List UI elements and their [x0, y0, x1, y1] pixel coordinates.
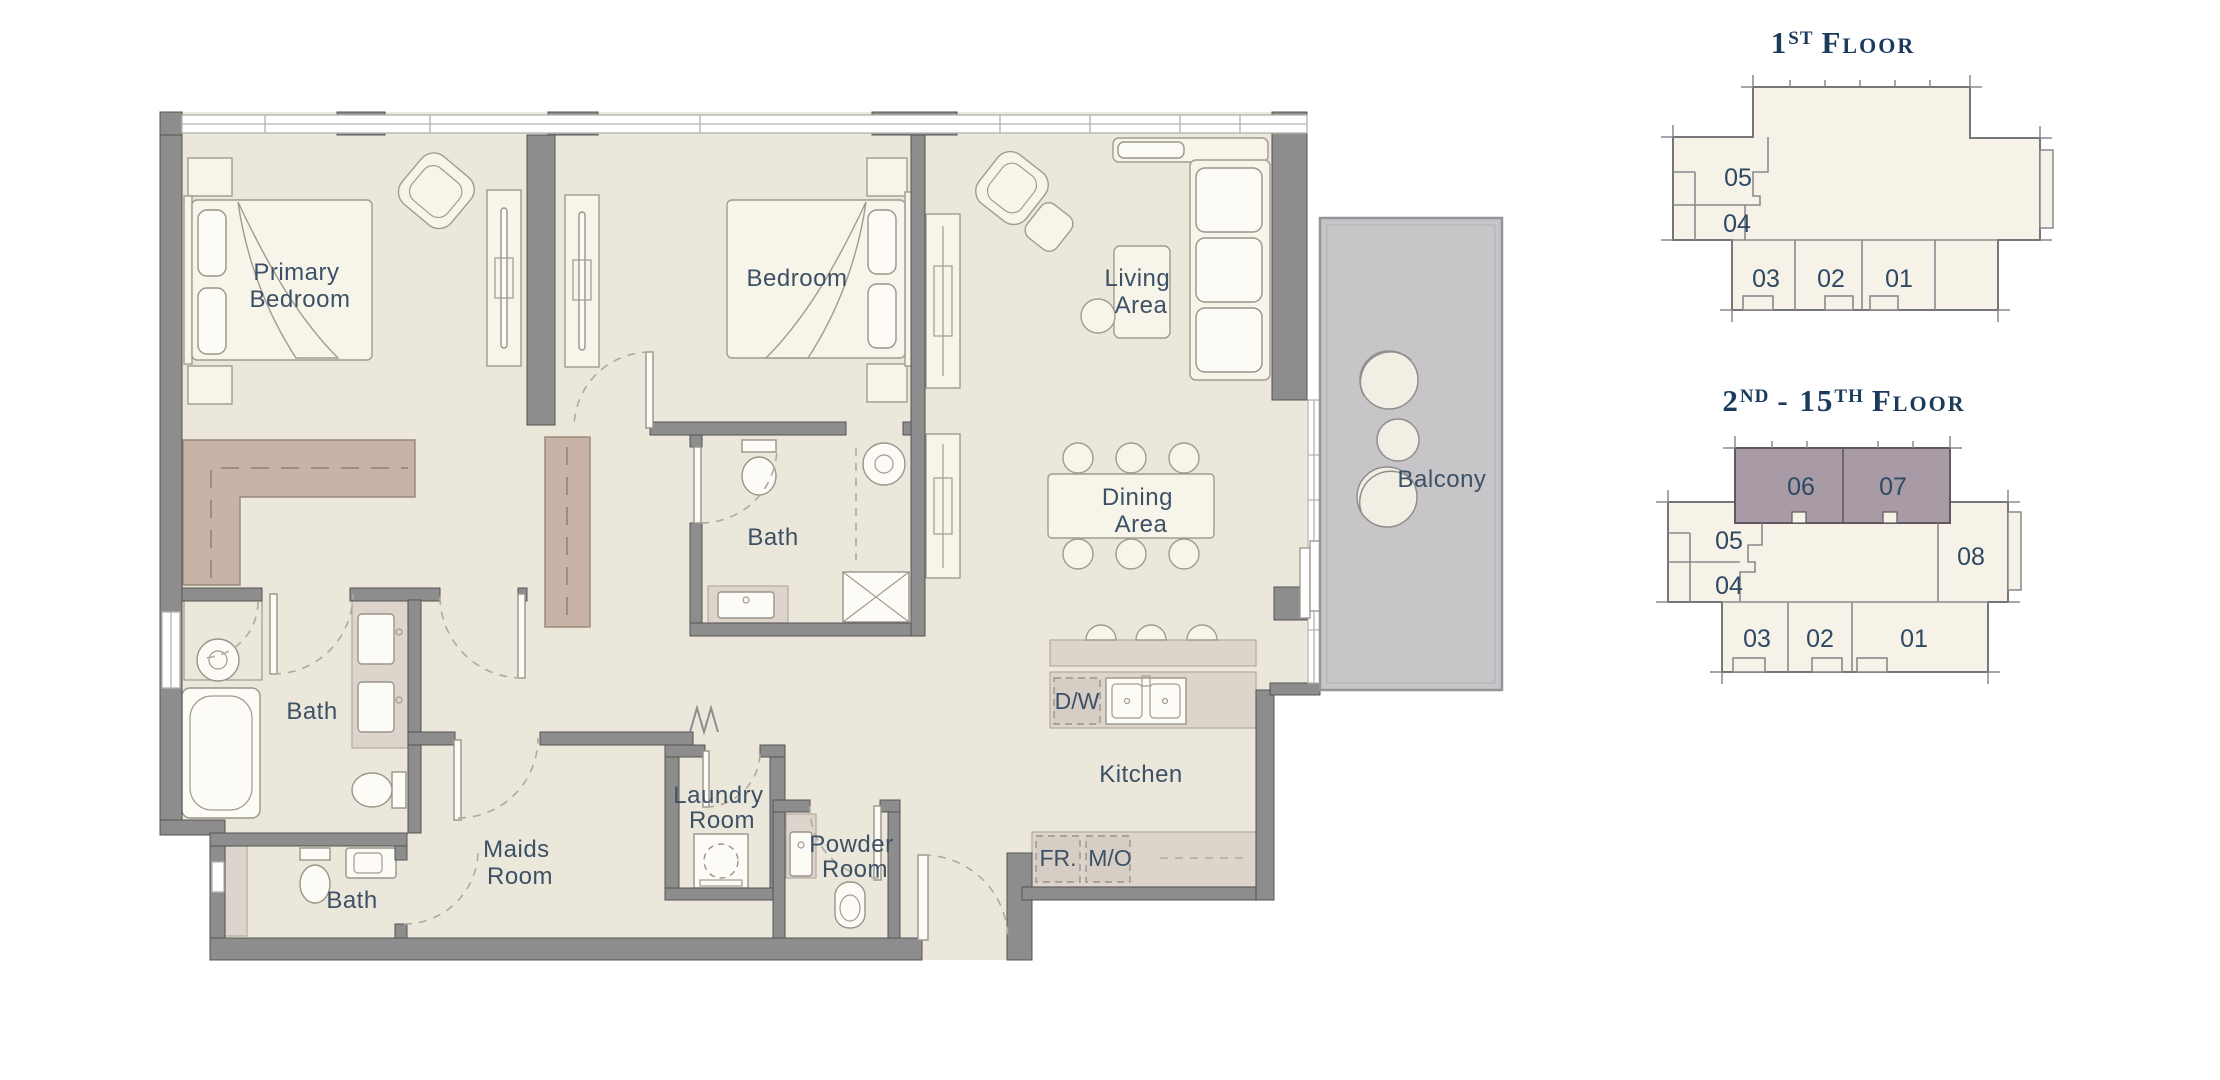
powder-room-label: Powder Room [809, 831, 901, 883]
bathtub [182, 688, 260, 818]
unit-01: 01 [1900, 625, 1928, 653]
unit-08: 08 [1957, 543, 1985, 571]
living-area-label: Living Area [1105, 265, 1178, 319]
shower-head [863, 443, 905, 485]
bedroom-label: Bedroom [747, 265, 848, 292]
washing-machine [694, 834, 748, 888]
maids-bath-shelf [225, 846, 247, 936]
unit-07: 07 [1879, 473, 1907, 501]
unit-04: 04 [1715, 572, 1743, 600]
microwave-label: M/O [1088, 845, 1131, 871]
bedroom-wardrobe-slider [565, 195, 599, 367]
keyplan-balcony [2008, 512, 2021, 590]
key-plan-first-floor: 1STFloor 05 04 03 02 01 [1661, 25, 2053, 322]
hall-cabinet [926, 434, 960, 578]
kitchen-island [1050, 640, 1256, 666]
unit-02: 02 [1806, 625, 1834, 653]
kitchen-stools [1086, 625, 1217, 640]
first-floor-title: 1STFloor [1771, 25, 1915, 60]
maids-room-label: Maids Room [483, 836, 557, 890]
kitchen-sink [1106, 676, 1186, 724]
bath-shared-label: Bath [747, 524, 798, 551]
unit-06: 06 [1787, 473, 1815, 501]
upper-floors-title: 2ND- 15THFloor [1722, 383, 1965, 418]
shower-head [197, 639, 239, 681]
balcony: Balcony [1320, 218, 1502, 690]
balcony-slider [1300, 548, 1310, 618]
keyplan-balcony [2040, 150, 2053, 228]
balcony-table [1377, 419, 1419, 461]
balcony-chair [1360, 351, 1418, 409]
toilet-tank [392, 772, 406, 808]
balcony-slider [1310, 541, 1320, 611]
unit-03: 03 [1752, 265, 1780, 293]
fridge-label: FR. [1039, 845, 1076, 871]
unit-01: 01 [1885, 265, 1913, 293]
side-table [1081, 299, 1115, 333]
unit-03: 03 [1743, 625, 1771, 653]
tv-console [926, 214, 960, 388]
primary-bedroom-label: Primary Bedroom [250, 259, 351, 313]
keyplan-outline [1673, 87, 2040, 310]
bath-primary-label: Bath [286, 698, 337, 725]
toilet-bowl [352, 773, 392, 807]
unit-05: 05 [1715, 527, 1743, 555]
unit-05: 05 [1724, 164, 1752, 192]
unit-04: 04 [1723, 210, 1751, 238]
balcony-label: Balcony [1398, 466, 1487, 493]
maids-bath-window [212, 862, 224, 892]
unit-02: 02 [1817, 265, 1845, 293]
primary-wardrobe-slider [487, 190, 521, 366]
floor-plan-sheet: Primary Bedroom Bedroom Living Area Dini… [0, 0, 2220, 1080]
key-plan-upper-floors: 2ND- 15THFloor 06 07 05 [1656, 383, 2021, 684]
dishwasher-label: D/W [1055, 688, 1100, 714]
kitchen-label: Kitchen [1099, 761, 1183, 788]
main-floor-plan: Primary Bedroom Bedroom Living Area Dini… [160, 112, 1320, 960]
bath-maids-label: Bath [326, 887, 377, 914]
